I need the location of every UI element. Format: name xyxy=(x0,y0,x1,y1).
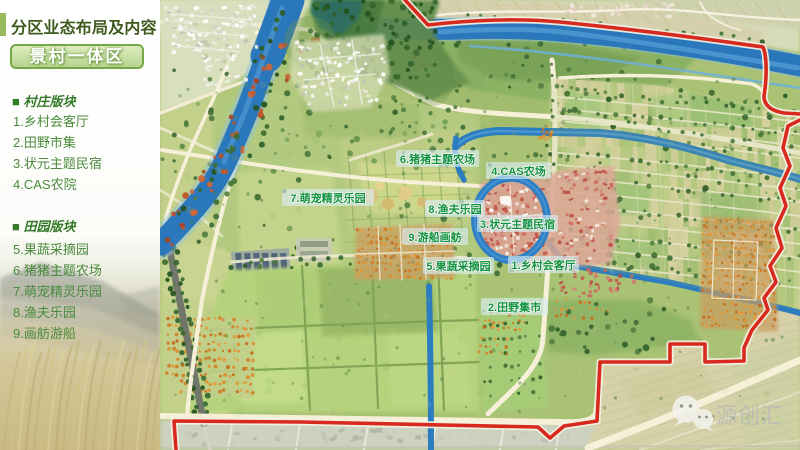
svg-text:6.猪猪主题农场: 6.猪猪主题农场 xyxy=(400,152,475,166)
svg-text:4.CAS农场: 4.CAS农场 xyxy=(491,164,545,178)
svg-text:5.果蔬采摘园: 5.果蔬采摘园 xyxy=(426,259,490,273)
svg-text:源创汇: 源创汇 xyxy=(716,404,784,428)
svg-text:7.萌宠精灵乐园: 7.萌宠精灵乐园 xyxy=(290,191,365,205)
svg-text:2.田野集市: 2.田野集市 xyxy=(488,300,541,314)
svg-text:8.渔夫乐园: 8.渔夫乐园 xyxy=(428,202,481,216)
svg-text:1.乡村会客厅: 1.乡村会客厅 xyxy=(511,258,575,272)
svg-text:3.状元主题民宿: 3.状元主题民宿 xyxy=(480,217,555,231)
svg-text:9.游船画舫: 9.游船画舫 xyxy=(408,230,461,244)
